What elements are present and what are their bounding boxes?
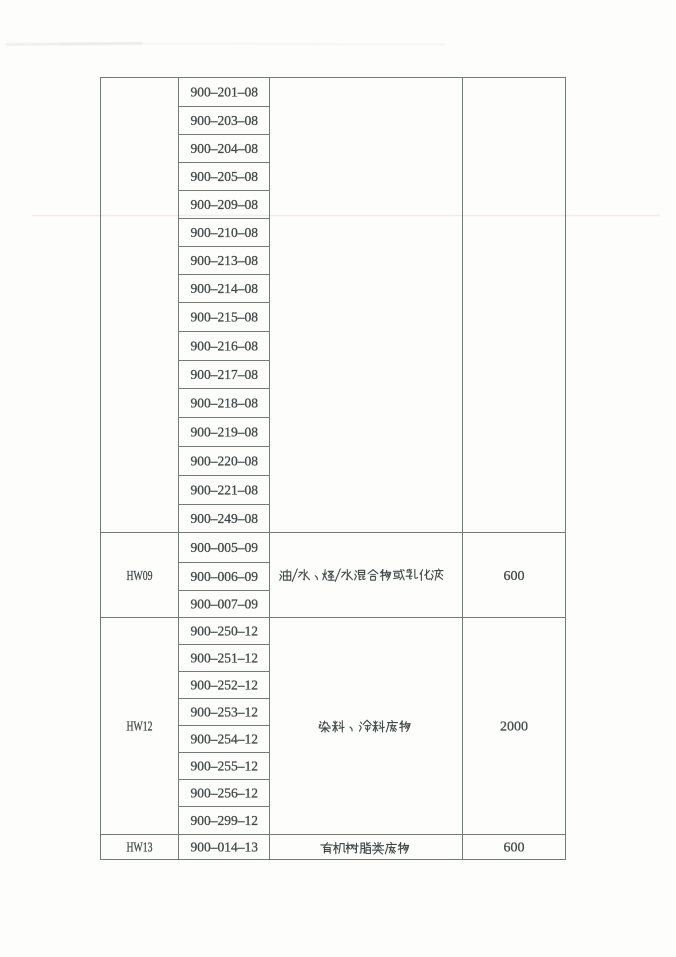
svg-text:900–210–08: 900–210–08 (191, 226, 259, 241)
svg-text:900–254–12: 900–254–12 (191, 733, 259, 748)
svg-text:900–205–08: 900–205–08 (191, 170, 259, 185)
svg-text:600: 600 (504, 569, 525, 584)
svg-text:HW13: HW13 (127, 841, 153, 856)
svg-text:900–203–08: 900–203–08 (191, 114, 259, 129)
svg-text:900–256–12: 900–256–12 (191, 787, 259, 802)
svg-text:900–215–08: 900–215–08 (191, 311, 259, 326)
svg-text:900–255–12: 900–255–12 (191, 760, 259, 775)
svg-text:900–216–08: 900–216–08 (191, 340, 259, 355)
svg-text:900–299–12: 900–299–12 (191, 814, 259, 829)
svg-text:HW09: HW09 (127, 569, 153, 584)
svg-text:900–249–08: 900–249–08 (191, 512, 259, 527)
svg-text:900–006–09: 900–006–09 (191, 570, 259, 585)
svg-text:900–213–08: 900–213–08 (191, 254, 259, 269)
svg-text:900–007–09: 900–007–09 (191, 598, 259, 613)
svg-text:900–251–12: 900–251–12 (191, 652, 259, 667)
svg-text:900–253–12: 900–253–12 (191, 706, 259, 721)
svg-text:HW12: HW12 (127, 720, 153, 735)
svg-text:900–201–08: 900–201–08 (191, 86, 259, 101)
svg-text:900–219–08: 900–219–08 (191, 426, 259, 441)
svg-text:600: 600 (504, 841, 525, 856)
svg-text:900–204–08: 900–204–08 (191, 142, 259, 157)
svg-text:900–250–12: 900–250–12 (191, 625, 259, 640)
svg-text:900–005–09: 900–005–09 (191, 541, 259, 556)
svg-text:900–209–08: 900–209–08 (191, 198, 259, 213)
svg-text:900–218–08: 900–218–08 (191, 397, 259, 412)
svg-text:900–214–08: 900–214–08 (191, 282, 259, 297)
svg-text:900–014–13: 900–014–13 (191, 841, 259, 856)
svg-text:900–217–08: 900–217–08 (191, 368, 259, 383)
svg-text:900–252–12: 900–252–12 (191, 679, 259, 694)
svg-text:900–220–08: 900–220–08 (191, 455, 259, 470)
svg-text:900–221–08: 900–221–08 (191, 484, 259, 499)
svg-text:2000: 2000 (500, 720, 528, 735)
